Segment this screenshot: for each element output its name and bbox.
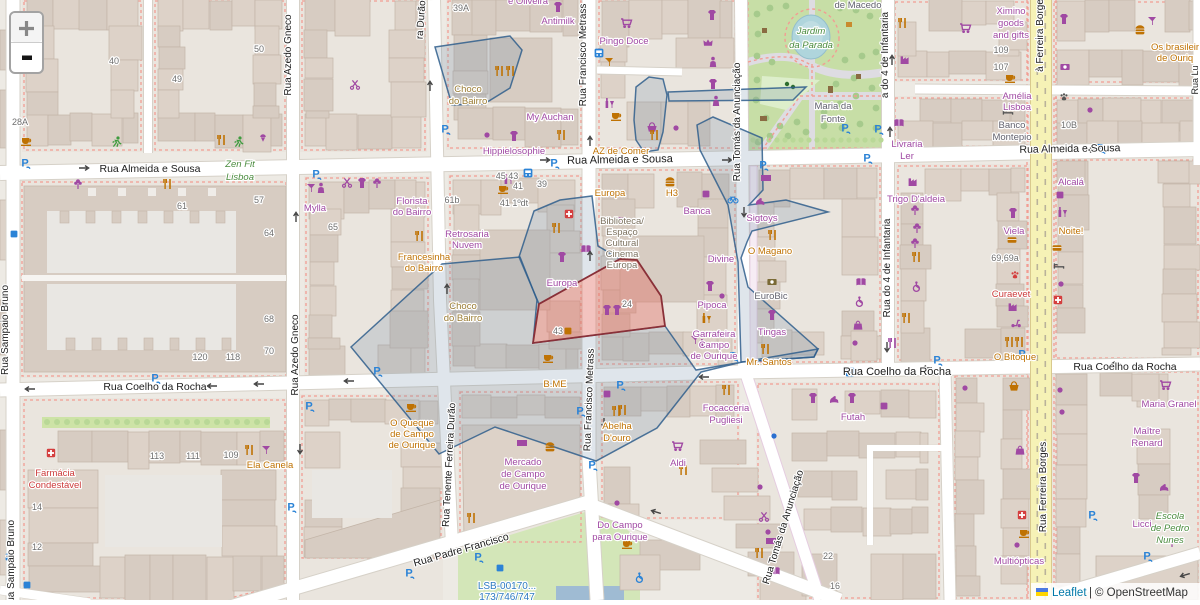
svg-text:49: 49: [172, 74, 182, 84]
svg-text:Condestável: Condestável: [29, 480, 82, 491]
svg-text:68: 68: [264, 314, 274, 324]
svg-text:61: 61: [177, 201, 187, 211]
svg-text:Mercado: Mercado: [505, 457, 542, 468]
svg-text:22: 22: [823, 551, 833, 561]
svg-text:Nunes: Nunes: [1156, 535, 1184, 546]
svg-text:Alcalá: Alcalá: [1058, 177, 1085, 188]
svg-text:Antimilk: Antimilk: [541, 16, 575, 27]
svg-text:Focacceria: Focacceria: [703, 403, 750, 414]
svg-text:Licci: Licci: [1132, 519, 1151, 530]
svg-text:107: 107: [993, 62, 1008, 72]
svg-text:Rua Coelho da Rocha: Rua Coelho da Rocha: [1073, 361, 1176, 373]
svg-text:B.ME: B.ME: [543, 379, 566, 390]
svg-text:D'ouro: D'ouro: [603, 433, 631, 444]
svg-text:LSB-00170...: LSB-00170...: [478, 581, 536, 592]
svg-text:Banco: Banco: [999, 120, 1026, 131]
svg-text:Mylla: Mylla: [304, 203, 327, 214]
svg-text:de Ourique: de Ourique: [388, 440, 435, 451]
svg-text:Garrafeira: Garrafeira: [693, 329, 736, 340]
svg-text:39A: 39A: [453, 3, 469, 13]
svg-text:Multiópticas: Multiópticas: [994, 556, 1044, 567]
svg-text:28A: 28A: [12, 117, 28, 127]
svg-text:Rua Coelho da Rocha: Rua Coelho da Rocha: [843, 366, 952, 378]
svg-text:Viela: Viela: [1004, 226, 1026, 237]
svg-text:a do 4 de Infantaria: a do 4 de Infantaria: [880, 11, 891, 98]
svg-text:Europa: Europa: [595, 188, 626, 199]
svg-text:70: 70: [264, 346, 274, 356]
svg-text:Livraria: Livraria: [891, 139, 923, 150]
svg-text:Europa: Europa: [547, 278, 578, 289]
svg-text:Ela Canela: Ela Canela: [247, 460, 294, 471]
svg-text:Espaço: Espaço: [606, 227, 638, 238]
svg-text:Trigo D'aldeia: Trigo D'aldeia: [887, 194, 946, 205]
svg-text:Rua Tomás da Anunciação: Rua Tomás da Anunciação: [732, 62, 743, 181]
svg-text:45 43: 45 43: [496, 171, 519, 181]
svg-text:64: 64: [264, 228, 274, 238]
svg-text:do Bairro: do Bairro: [393, 207, 432, 218]
svg-text:14: 14: [32, 502, 42, 512]
svg-text:Rua Azedo Gneco: Rua Azedo Gneco: [283, 14, 294, 96]
svg-text:Rua Lu: Rua Lu: [1190, 65, 1200, 94]
svg-text:à Ferreira Borges: à Ferreira Borges: [1035, 0, 1046, 72]
svg-text:da Parada: da Parada: [789, 40, 833, 51]
svg-text:Rua Ferreira Borges: Rua Ferreira Borges: [1038, 442, 1049, 533]
svg-text:Mr. Santos: Mr. Santos: [746, 357, 792, 368]
svg-text:Montepio: Montepio: [992, 132, 1031, 143]
svg-text:Divine: Divine: [708, 254, 734, 265]
svg-text:and gifts: and gifts: [993, 30, 1029, 41]
svg-text:My Auchan: My Auchan: [527, 112, 574, 123]
svg-text:Florista: Florista: [396, 196, 428, 207]
svg-text:40: 40: [109, 56, 119, 66]
svg-text:Escola: Escola: [1156, 511, 1185, 522]
svg-text:Pingo Doce: Pingo Doce: [599, 36, 648, 47]
svg-text:Ler: Ler: [900, 151, 914, 162]
svg-text:12: 12: [32, 542, 42, 552]
svg-text:Rua Azedo Gneco: Rua Azedo Gneco: [290, 314, 301, 396]
svg-text:Hippielosophie: Hippielosophie: [483, 146, 545, 157]
svg-text:Rua Francisco Metrass: Rua Francisco Metrass: [578, 4, 589, 107]
svg-text:Os brasileir: Os brasileir: [1151, 42, 1199, 53]
svg-text:118: 118: [226, 352, 240, 362]
svg-text:de Ourique: de Ourique: [499, 481, 546, 492]
svg-text:Rua Almeida e Sousa: Rua Almeida e Sousa: [1019, 142, 1120, 156]
svg-text:69,69a: 69,69a: [991, 253, 1019, 263]
svg-text:O Bitoque: O Bitoque: [994, 352, 1036, 363]
svg-text:Maria Granel: Maria Granel: [1142, 399, 1197, 410]
svg-text:Tingas: Tingas: [758, 327, 786, 338]
svg-text:Banca: Banca: [684, 206, 712, 217]
svg-text:de Campo: de Campo: [390, 429, 434, 440]
svg-text:de Campo: de Campo: [501, 469, 545, 480]
svg-text:Sigtoys: Sigtoys: [746, 213, 777, 224]
svg-text:Retrosaria: Retrosaria: [445, 229, 490, 240]
svg-text:Lisboa: Lisboa: [1003, 102, 1032, 113]
svg-text:65: 65: [328, 222, 338, 232]
svg-text:41: 41: [513, 181, 523, 191]
svg-text:Farmácia: Farmácia: [35, 468, 75, 479]
svg-text:do Bairro: do Bairro: [449, 96, 488, 107]
svg-text:Campo: Campo: [699, 340, 730, 351]
svg-text:57: 57: [254, 195, 264, 205]
svg-text:109: 109: [993, 45, 1008, 55]
svg-text:43: 43: [553, 326, 563, 336]
svg-text:Renard: Renard: [1131, 438, 1162, 449]
svg-text:Rua Sampaio Bruno: Rua Sampaio Bruno: [6, 520, 17, 600]
svg-text:EuroBic: EuroBic: [754, 291, 788, 302]
svg-text:Rua Sampaio Bruno: Rua Sampaio Bruno: [0, 285, 11, 375]
svg-text:Abelha: Abelha: [602, 421, 632, 432]
svg-text:50: 50: [254, 44, 264, 54]
svg-text:Curaevet: Curaevet: [992, 289, 1031, 300]
svg-text:Futah: Futah: [841, 412, 865, 423]
svg-text:Maître: Maître: [1134, 426, 1161, 437]
svg-text:© OpenStreetMap: © OpenStreetMap: [1095, 587, 1188, 599]
svg-text:120: 120: [192, 352, 207, 362]
svg-text:Pugliesi: Pugliesi: [709, 415, 742, 426]
svg-text:10B: 10B: [1061, 120, 1077, 130]
svg-text:173/746/747: 173/746/747: [479, 592, 535, 600]
svg-text:de Macedo: de Macedo: [834, 0, 881, 11]
svg-text:Leaflet: Leaflet: [1052, 587, 1087, 599]
svg-text:O Queque: O Queque: [390, 418, 434, 429]
svg-text:para Ourique: para Ourique: [592, 532, 647, 543]
svg-text:Do Campo: Do Campo: [597, 520, 642, 531]
svg-text:Biblioteca/: Biblioteca/: [600, 216, 644, 227]
svg-text:Rua do 4 de Infantaria: Rua do 4 de Infantaria: [882, 218, 893, 317]
svg-text:Francesinha: Francesinha: [398, 252, 451, 263]
svg-text:Ximino: Ximino: [996, 6, 1025, 17]
svg-text:Cultural: Cultural: [606, 238, 639, 249]
svg-text:109: 109: [223, 450, 238, 460]
svg-text:do Bairro: do Bairro: [444, 313, 483, 324]
svg-text:e Oliveira: e Oliveira: [508, 0, 549, 7]
svg-text:H3: H3: [666, 188, 678, 199]
svg-text:do Bairro: do Bairro: [405, 263, 444, 274]
svg-text:Aldi: Aldi: [670, 458, 686, 469]
svg-text:Rua Coelho da Rocha: Rua Coelho da Rocha: [103, 381, 206, 393]
svg-text:|: |: [1089, 587, 1092, 599]
svg-text:Nuvem: Nuvem: [452, 240, 482, 251]
svg-text:Fonte: Fonte: [821, 114, 845, 125]
svg-text:Noite!: Noite!: [1059, 226, 1084, 237]
svg-text:Maria da: Maria da: [815, 101, 853, 112]
svg-text:Zen Fit: Zen Fit: [224, 159, 255, 170]
svg-text:de Pedro: de Pedro: [1151, 523, 1190, 534]
svg-text:39: 39: [537, 179, 547, 189]
svg-text:AZ de Comer: AZ de Comer: [593, 146, 650, 157]
svg-text:de Ouriq: de Ouriq: [1157, 53, 1193, 64]
svg-text:61b: 61b: [444, 195, 459, 205]
svg-text:Choco: Choco: [449, 301, 476, 312]
svg-text:Choco: Choco: [454, 84, 481, 95]
svg-text:Amélia: Amélia: [1002, 91, 1032, 102]
svg-text:111: 111: [186, 451, 200, 461]
svg-text:Europa: Europa: [607, 260, 638, 271]
svg-text:113: 113: [150, 451, 164, 461]
svg-text:Cinema: Cinema: [606, 249, 639, 260]
svg-text:16: 16: [830, 581, 840, 591]
svg-text:O Magano: O Magano: [748, 246, 792, 257]
svg-text:Lisboa: Lisboa: [226, 172, 254, 183]
svg-text:de Ourique: de Ourique: [690, 351, 737, 362]
svg-text:Jardim: Jardim: [796, 26, 826, 37]
svg-text:Rua Almeida e Sousa: Rua Almeida e Sousa: [100, 163, 201, 175]
svg-text:24: 24: [622, 299, 632, 309]
svg-text:goods: goods: [998, 18, 1024, 29]
svg-text:Pipoca: Pipoca: [697, 300, 727, 311]
svg-text:41 1ºdt: 41 1ºdt: [500, 198, 529, 208]
